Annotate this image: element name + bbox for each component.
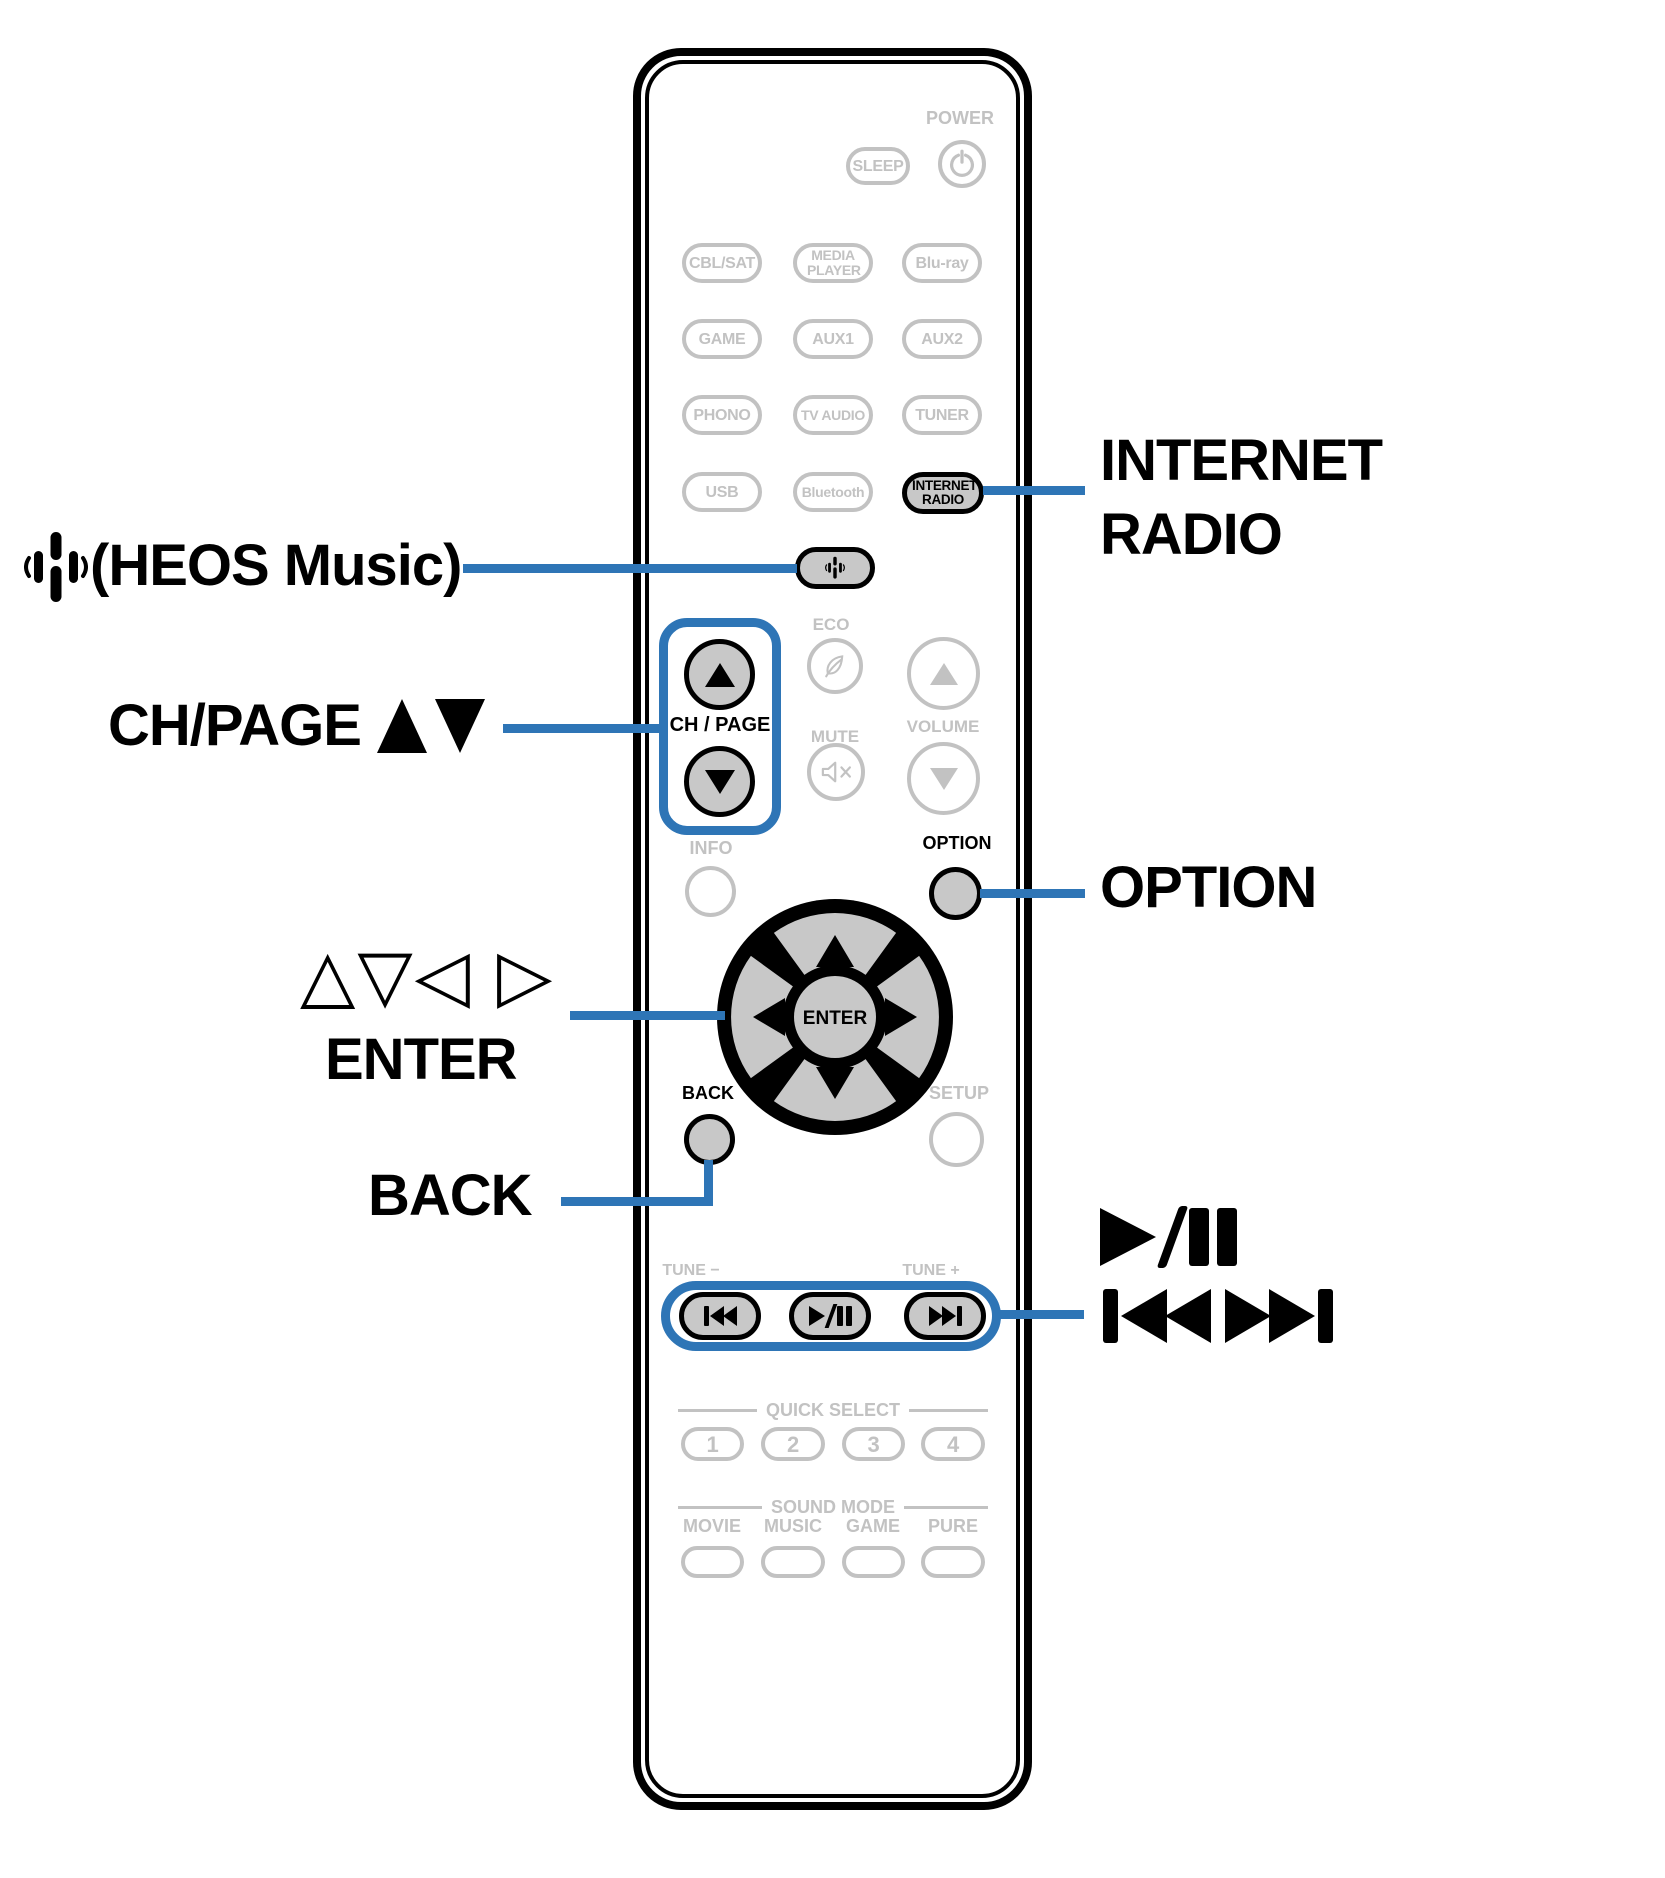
volume-down-button[interactable]	[907, 742, 980, 815]
internet-radio-callout-label: INTERNET RADIO	[1100, 424, 1382, 572]
mute-button[interactable]	[807, 743, 865, 801]
cursor-callout-line	[570, 1011, 725, 1020]
source-game-button[interactable]: GAME	[682, 319, 762, 359]
play-icon	[1100, 1208, 1156, 1266]
power-button[interactable]	[938, 140, 986, 188]
mute-icon	[819, 759, 853, 785]
sound-mode-header: SOUND MODE	[678, 1497, 988, 1518]
rewind-triangle-icon	[1121, 1289, 1167, 1343]
eco-button[interactable]	[807, 638, 863, 694]
cursor-pad[interactable]: ENTER	[715, 897, 955, 1137]
source-phono-button[interactable]: PHONO	[682, 395, 762, 435]
quick-select-3-button[interactable]: 3	[842, 1427, 905, 1461]
eco-label: ECO	[800, 615, 862, 635]
manual-remote-diagram: POWER SLEEP CBL/SAT MEDIA PLAYER Blu-ray…	[0, 0, 1665, 1878]
heos-icon	[813, 553, 857, 583]
back-button[interactable]	[684, 1114, 735, 1165]
ch-page-highlight	[659, 618, 781, 835]
source-tv-audio-button[interactable]: TV AUDIO	[793, 395, 873, 435]
tune-minus-label: TUNE −	[648, 1262, 734, 1280]
skip-callout-icon	[1103, 1289, 1333, 1343]
sound-mode-movie-label: MOVIE	[672, 1516, 752, 1537]
back-callout-label: BACK	[368, 1164, 532, 1228]
back-callout-line-horizontal	[561, 1197, 713, 1206]
ch-page-callout-label: CH/PAGE	[108, 694, 485, 758]
forward-triangle-icon	[1225, 1289, 1271, 1343]
option-callout-line	[980, 889, 1085, 898]
skip-back-bar-icon	[1103, 1289, 1118, 1343]
sound-mode-music-label: MUSIC	[753, 1516, 833, 1537]
quick-select-1-button[interactable]: 1	[681, 1427, 744, 1461]
source-aux1-button[interactable]: AUX1	[793, 319, 873, 359]
internet-radio-button[interactable]: INTERNET RADIO	[902, 472, 984, 514]
play-pause-callout-icon	[1100, 1206, 1237, 1268]
down-arrow-icon	[930, 768, 958, 790]
rewind-triangle-icon	[1165, 1289, 1211, 1343]
pause-bar-icon	[1217, 1208, 1237, 1266]
internet-radio-callout-line	[983, 486, 1085, 495]
transport-highlight	[661, 1281, 1001, 1351]
sound-mode-game-label: GAME	[833, 1516, 913, 1537]
back-button-label: BACK	[671, 1083, 745, 1104]
ch-page-callout-arrows	[377, 699, 485, 753]
heos-callout-line	[463, 564, 797, 573]
sound-mode-game-button[interactable]	[842, 1546, 905, 1578]
enter-button-label: ENTER	[803, 1008, 868, 1029]
source-usb-button[interactable]: USB	[682, 472, 762, 512]
slash-icon	[1157, 1206, 1189, 1268]
volume-label: VOLUME	[893, 717, 993, 737]
option-callout-label: OPTION	[1100, 856, 1316, 920]
skip-forward-bar-icon	[1318, 1289, 1333, 1343]
quick-select-4-button[interactable]: 4	[921, 1427, 985, 1461]
power-label: POWER	[925, 108, 995, 129]
quick-select-2-button[interactable]: 2	[761, 1427, 825, 1461]
header-line	[678, 1506, 762, 1509]
source-media-player-button[interactable]: MEDIA PLAYER	[793, 243, 873, 283]
sound-mode-movie-button[interactable]	[681, 1546, 744, 1578]
source-bluetooth-button[interactable]: Bluetooth	[793, 472, 873, 512]
heos-icon	[24, 520, 88, 621]
quick-select-header: QUICK SELECT	[678, 1400, 988, 1421]
header-line	[904, 1506, 988, 1509]
header-line	[909, 1409, 988, 1412]
setup-button[interactable]	[929, 1112, 984, 1167]
cursor-callout-arrows: △▽◁ ▷	[300, 936, 554, 1015]
source-aux2-button[interactable]: AUX2	[902, 319, 982, 359]
sound-mode-pure-button[interactable]	[921, 1546, 985, 1578]
up-arrow-icon	[377, 699, 427, 753]
enter-callout-label: ENTER	[325, 1028, 517, 1092]
power-icon	[945, 147, 979, 181]
source-blu-ray-button[interactable]: Blu-ray	[902, 243, 982, 283]
heos-callout-label: (HEOS Music)	[90, 534, 462, 598]
ch-page-callout-line	[503, 724, 663, 733]
leaf-icon	[819, 650, 851, 682]
source-tuner-button[interactable]: TUNER	[902, 395, 982, 435]
info-label: INFO	[682, 838, 740, 859]
source-cbl-sat-button[interactable]: CBL/SAT	[682, 243, 762, 283]
option-button-label: OPTION	[919, 833, 995, 854]
forward-triangle-icon	[1269, 1289, 1315, 1343]
heos-button[interactable]	[795, 547, 875, 589]
setup-label: SETUP	[922, 1083, 996, 1104]
up-arrow-icon	[930, 663, 958, 685]
tune-plus-label: TUNE +	[888, 1262, 974, 1280]
sound-mode-pure-label: PURE	[913, 1516, 993, 1537]
transport-callout-line	[998, 1310, 1084, 1319]
sleep-button[interactable]: SLEEP	[846, 147, 910, 185]
header-line	[678, 1409, 757, 1412]
pause-bar-icon	[1189, 1208, 1209, 1266]
down-arrow-icon	[435, 699, 485, 753]
sound-mode-music-button[interactable]	[761, 1546, 825, 1578]
volume-up-button[interactable]	[907, 637, 980, 710]
